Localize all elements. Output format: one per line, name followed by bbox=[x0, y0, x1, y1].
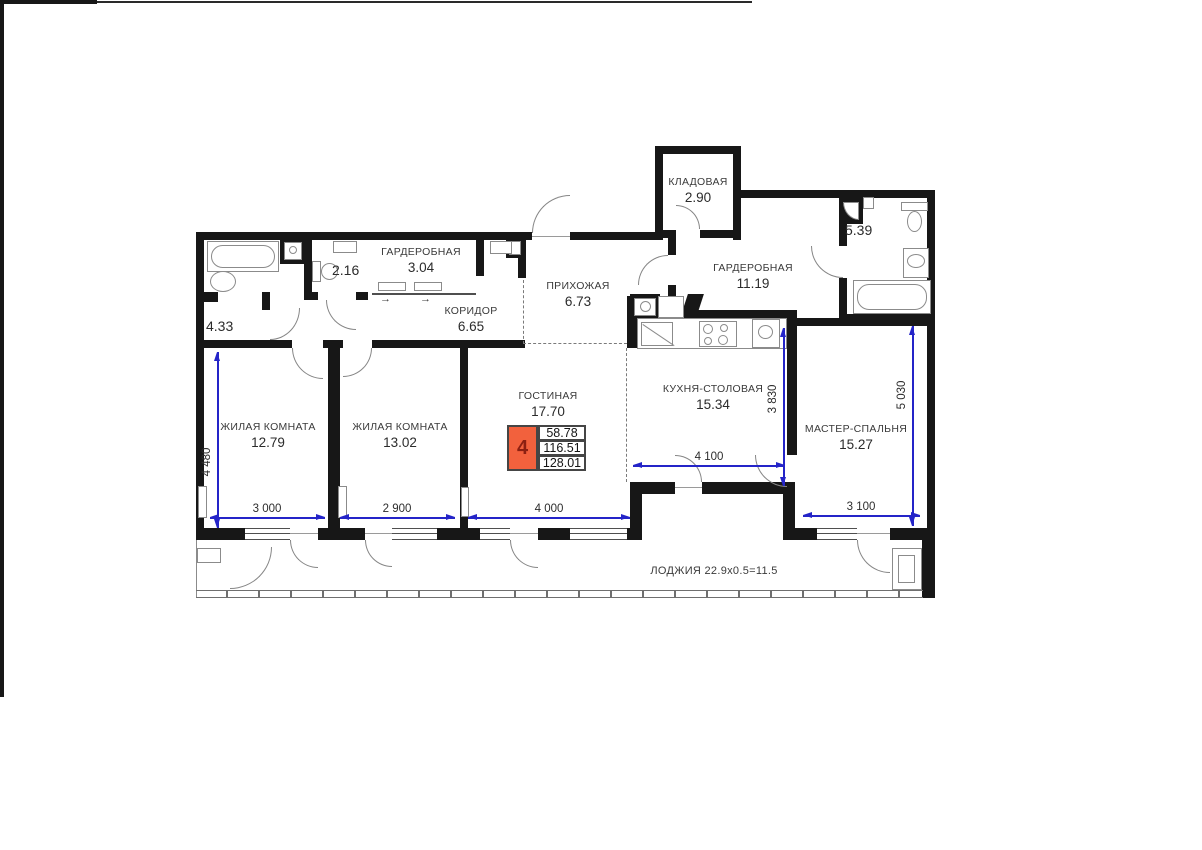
dimension-label: 3 000 bbox=[253, 503, 282, 515]
room-name: ГОСТИНАЯ bbox=[518, 390, 577, 403]
stove-burner-icon bbox=[703, 324, 713, 334]
stove-burner-icon bbox=[718, 335, 728, 345]
balcony-door-arc bbox=[857, 540, 890, 573]
door-arc bbox=[676, 205, 700, 229]
dimension-arrow bbox=[340, 514, 349, 520]
room-label-wardrobe-small: ГАРДЕРОБНАЯ 3.04 bbox=[381, 246, 461, 276]
wall bbox=[476, 240, 484, 276]
room-label-storage: КЛАДОВАЯ 2.90 bbox=[668, 176, 727, 206]
dimension-arrow bbox=[446, 514, 455, 520]
wall bbox=[196, 292, 218, 302]
total-area-value: 128.01 bbox=[538, 455, 586, 471]
vent-icon bbox=[863, 197, 874, 209]
window bbox=[392, 528, 437, 540]
wall bbox=[922, 540, 935, 598]
balcony-door-arc bbox=[510, 540, 538, 568]
room-name: ЖИЛАЯ КОМНАТА bbox=[352, 421, 447, 434]
wall bbox=[318, 528, 365, 540]
stove-burner-icon bbox=[720, 324, 728, 332]
page-frame-left bbox=[0, 0, 4, 697]
dimension-arrow bbox=[468, 514, 477, 520]
room-label-bathroom-left: 4.33 bbox=[206, 318, 233, 334]
sink-icon bbox=[210, 271, 236, 292]
dimension-line bbox=[633, 465, 785, 467]
cabinet-icon bbox=[197, 548, 221, 563]
wall bbox=[927, 190, 935, 540]
room-label-corridor: КОРИДОР 6.65 bbox=[444, 305, 497, 335]
dimension-label: 5 030 bbox=[896, 378, 908, 412]
door-arc bbox=[292, 348, 323, 379]
wall bbox=[262, 292, 270, 310]
dimension-arrow bbox=[909, 517, 915, 526]
wall bbox=[196, 528, 245, 540]
loggia-label: ЛОДЖИЯ 22.9x0.5=11.5 bbox=[650, 565, 777, 578]
zone-boundary bbox=[626, 348, 627, 482]
wardrobe-rod-icon bbox=[378, 282, 406, 291]
wall bbox=[196, 232, 532, 240]
wardrobe-arrow: → bbox=[420, 293, 431, 305]
room-label-wc: 2.16 bbox=[332, 262, 359, 278]
room-area: 2.90 bbox=[668, 190, 727, 206]
dimension-label: 3 100 bbox=[847, 501, 876, 513]
wall bbox=[570, 232, 663, 240]
sink-icon bbox=[490, 241, 512, 254]
wardrobe-arrow: → bbox=[380, 293, 391, 305]
dimension-arrow bbox=[621, 514, 630, 520]
wall bbox=[437, 528, 480, 540]
dimension-label: 2 900 bbox=[383, 503, 412, 515]
room-area: 13.02 bbox=[352, 435, 447, 451]
room-area: 3.04 bbox=[381, 260, 461, 276]
wall bbox=[304, 292, 318, 300]
floor-plan: → → КЛАДОВАЯ 2.90 ГАРДЕРОБНАЯ 3.04 2.16 … bbox=[0, 0, 1202, 850]
door-sill bbox=[290, 533, 318, 534]
radiator-icon bbox=[198, 486, 207, 518]
wall bbox=[733, 146, 741, 240]
dimension-line bbox=[468, 517, 630, 519]
dimension-arrow bbox=[214, 352, 220, 361]
bathtub-icon bbox=[857, 284, 927, 310]
door-sill bbox=[857, 533, 890, 534]
room-name: ГАРДЕРОБНАЯ bbox=[381, 246, 461, 259]
window bbox=[480, 528, 510, 540]
room-area: 11.19 bbox=[713, 276, 793, 292]
page-frame-top-line bbox=[97, 1, 752, 3]
dimension-line bbox=[340, 517, 455, 519]
dimension-arrow bbox=[803, 512, 812, 518]
wall bbox=[890, 528, 935, 540]
wall bbox=[655, 146, 663, 240]
dimension-arrow bbox=[909, 326, 915, 335]
door-arc bbox=[343, 348, 372, 377]
dimension-arrow bbox=[214, 519, 220, 528]
room-label-master: МАСТЕР-СПАЛЬНЯ 15.27 bbox=[805, 423, 907, 453]
rooms-count-cell: 4 bbox=[507, 425, 538, 471]
dimension-label: 4 100 bbox=[695, 451, 724, 463]
room-name: КЛАДОВАЯ bbox=[668, 176, 727, 189]
toilet-icon bbox=[907, 211, 922, 232]
door-arc bbox=[270, 308, 300, 340]
room-area: 15.34 bbox=[663, 397, 763, 413]
wall bbox=[630, 482, 675, 494]
apartment-area-value: 116.51 bbox=[538, 440, 586, 456]
room-area: 17.70 bbox=[518, 404, 577, 420]
cabinet-icon bbox=[898, 555, 915, 583]
toilet-icon bbox=[901, 202, 928, 211]
laundry-box-icon bbox=[658, 296, 684, 318]
wall bbox=[700, 230, 733, 238]
window bbox=[570, 528, 627, 540]
door-arc bbox=[326, 300, 356, 330]
washing-machine-icon bbox=[640, 301, 651, 312]
wall bbox=[795, 528, 817, 540]
room-area: 6.65 bbox=[444, 319, 497, 335]
wall bbox=[787, 318, 797, 455]
loggia-label-text: ЛОДЖИЯ 22.9x0.5=11.5 bbox=[650, 565, 777, 578]
radiator-icon bbox=[461, 487, 469, 517]
dimension-arrow bbox=[633, 462, 642, 468]
wall bbox=[538, 528, 570, 540]
door-sill bbox=[365, 533, 392, 534]
room-area: 15.27 bbox=[805, 437, 907, 453]
balcony-door-arc bbox=[290, 540, 318, 568]
loggia-glazing bbox=[196, 590, 923, 598]
room-name: ЖИЛАЯ КОМНАТА bbox=[220, 421, 315, 434]
dimension-arrow bbox=[780, 328, 786, 337]
toilet-icon bbox=[312, 261, 321, 282]
room-label-living2: ЖИЛАЯ КОМНАТА 13.02 bbox=[352, 421, 447, 451]
window bbox=[245, 528, 290, 540]
dimension-label: 3 830 bbox=[767, 382, 779, 416]
wall bbox=[655, 146, 741, 154]
wall bbox=[356, 292, 368, 300]
wall bbox=[196, 340, 292, 348]
room-name: МАСТЕР-СПАЛЬНЯ bbox=[805, 423, 907, 436]
dimension-arrow bbox=[780, 477, 786, 486]
dimension-line bbox=[783, 328, 785, 486]
balcony-door-arc bbox=[365, 540, 392, 567]
dimension-line bbox=[210, 517, 325, 519]
room-name: КУХНЯ-СТОЛОВАЯ bbox=[663, 383, 763, 396]
room-name: ГАРДЕРОБНАЯ bbox=[713, 262, 793, 275]
wardrobe-rod-icon bbox=[414, 282, 442, 291]
sink-icon bbox=[907, 254, 925, 268]
door-sill bbox=[675, 487, 702, 488]
stove-burner-icon bbox=[704, 337, 712, 345]
window bbox=[817, 528, 857, 540]
dimension-line bbox=[217, 352, 219, 528]
vent-icon bbox=[289, 246, 297, 254]
room-area: 6.73 bbox=[546, 294, 609, 310]
kitchen-sink-icon bbox=[758, 325, 773, 339]
wall bbox=[783, 494, 795, 540]
room-name: КОРИДОР bbox=[444, 305, 497, 318]
room-label-kitchen: КУХНЯ-СТОЛОВАЯ 15.34 bbox=[663, 383, 763, 413]
room-label-hallway: ПРИХОЖАЯ 6.73 bbox=[546, 280, 609, 310]
zone-boundary bbox=[523, 343, 627, 344]
dimension-label: 4 480 bbox=[201, 445, 213, 479]
door-arc bbox=[638, 255, 668, 285]
sink-icon bbox=[333, 241, 357, 253]
dimension-arrow bbox=[316, 514, 325, 520]
door-arc bbox=[811, 246, 843, 278]
dimension-line bbox=[912, 326, 914, 526]
loggia-door-arc bbox=[230, 547, 272, 589]
entrance-sill bbox=[532, 236, 570, 237]
wall bbox=[741, 190, 935, 198]
room-name: ПРИХОЖАЯ bbox=[546, 280, 609, 293]
room-label-lounge: ГОСТИНАЯ 17.70 bbox=[518, 390, 577, 420]
info-rows: 58.78 116.51 128.01 bbox=[538, 425, 586, 471]
dimension-line bbox=[803, 515, 920, 517]
room-area: 12.79 bbox=[220, 435, 315, 451]
wall bbox=[839, 314, 935, 322]
wall bbox=[630, 494, 642, 540]
zone-boundary bbox=[523, 280, 524, 344]
room-label-bathroom-right: 5.39 bbox=[845, 222, 872, 238]
page-frame-top bbox=[0, 0, 97, 4]
bathtub-icon bbox=[211, 245, 275, 268]
living-area-value: 58.78 bbox=[538, 425, 586, 441]
room-label-living1: ЖИЛАЯ КОМНАТА 12.79 bbox=[220, 421, 315, 451]
room-label-wardrobe-big: ГАРДЕРОБНАЯ 11.19 bbox=[713, 262, 793, 292]
dimension-label: 4 000 bbox=[535, 503, 564, 515]
wall bbox=[372, 340, 525, 348]
entrance-door-arc bbox=[532, 195, 570, 233]
wall bbox=[668, 237, 676, 255]
door-sill bbox=[510, 533, 538, 534]
